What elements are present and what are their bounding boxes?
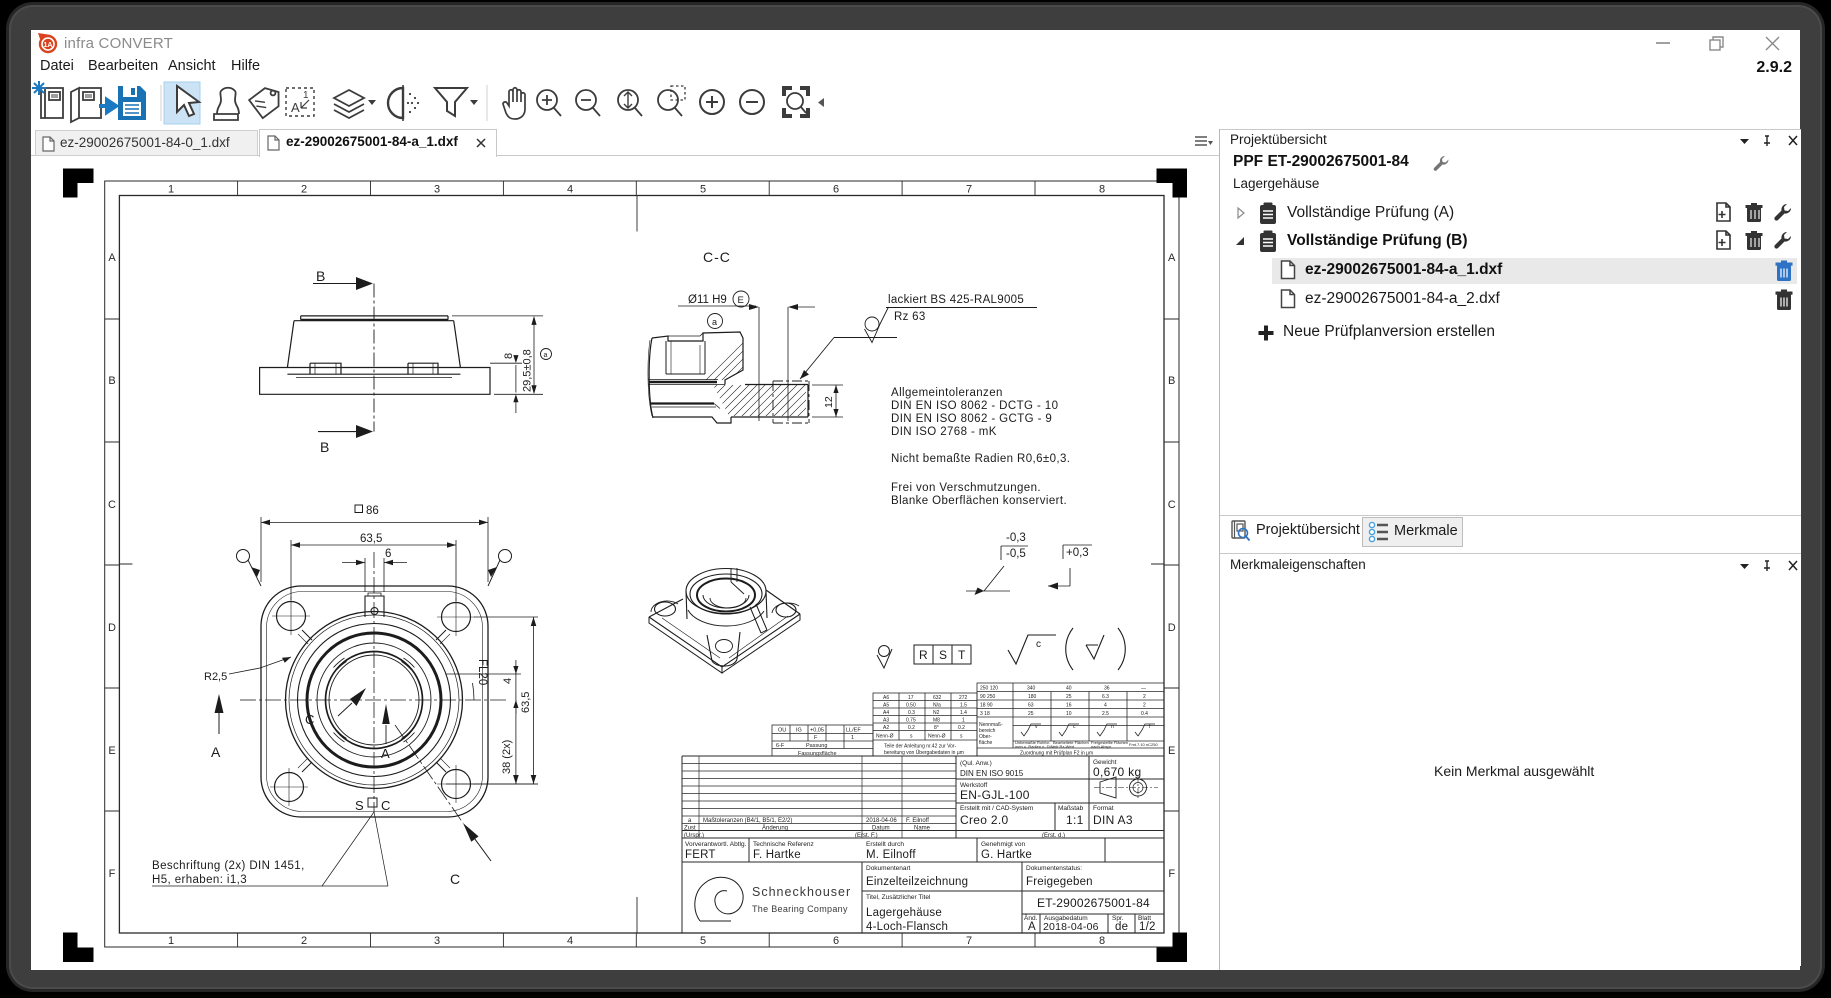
svg-text:C: C (108, 499, 116, 511)
svg-text:Technische Referenz: Technische Referenz (753, 841, 814, 848)
svg-text:90 250: 90 250 (980, 694, 996, 700)
svg-text:Frei von Verschmutzungen.: Frei von Verschmutzungen. (891, 482, 1041, 494)
svg-text:250 120: 250 120 (980, 686, 998, 692)
svg-text:Lagergehäuse: Lagergehäuse (866, 907, 942, 919)
svg-text:Ø11 H9: Ø11 H9 (688, 294, 727, 306)
svg-text:180: 180 (1028, 694, 1037, 700)
svg-text:Titel, Zusätzlicher Titel: Titel, Zusätzlicher Titel (866, 894, 931, 901)
svg-text:G. Hartke: G. Hartke (981, 849, 1032, 861)
svg-text:R: R (919, 648, 928, 662)
svg-text:4: 4 (1104, 703, 1107, 709)
svg-text:0.2: 0.2 (958, 725, 965, 731)
svg-text:(Urspr.): (Urspr.) (684, 833, 704, 839)
svg-text:A3: A3 (883, 718, 889, 724)
svg-text:Passung: Passung (806, 743, 827, 749)
svg-text:—: — (1141, 686, 1146, 692)
svg-text:Zuordnung mit Prüfplan F2 in µ: Zuordnung mit Prüfplan F2 in µm (1020, 751, 1093, 757)
svg-text:nach Abspr.: nach Abspr. (1091, 744, 1112, 749)
svg-text:EN-GJL-100: EN-GJL-100 (960, 788, 1030, 802)
svg-text:1:1: 1:1 (1066, 813, 1084, 827)
svg-text:Dokumentenart: Dokumentenart (866, 865, 911, 872)
svg-text:A: A (381, 746, 390, 761)
svg-text:6: 6 (833, 184, 839, 196)
svg-text:Maßtoleranzen (B4/1, B5/1, E2/: Maßtoleranzen (B4/1, B5/1, E2/2) (703, 818, 792, 824)
svg-text:C: C (450, 871, 460, 887)
svg-text:-0,5: -0,5 (1006, 548, 1026, 560)
svg-text:Name: Name (914, 826, 931, 832)
svg-text:Nicht bemaßte Radien R0,6±0,3.: Nicht bemaßte Radien R0,6±0,3. (891, 453, 1070, 465)
svg-text:Format: Format (1093, 805, 1114, 812)
svg-text:B: B (1168, 375, 1175, 387)
svg-text:10: 10 (1066, 711, 1072, 717)
svg-text:F: F (1168, 868, 1175, 880)
svg-text:4: 4 (567, 184, 573, 196)
svg-text:Erstellt durch: Erstellt durch (866, 841, 904, 848)
svg-text:63: 63 (1028, 703, 1034, 709)
svg-text:A: A (1168, 252, 1176, 264)
svg-text:Schneckhouser: Schneckhouser (752, 885, 851, 899)
svg-text:2.5: 2.5 (1102, 711, 1109, 717)
svg-text:B: B (320, 439, 329, 455)
svg-text:4: 4 (502, 678, 514, 684)
svg-text:M8: M8 (933, 718, 940, 724)
svg-text:men u. Radien n. DIN: men u. Radien n. DIN (1015, 744, 1054, 749)
svg-text:OU: OU (778, 728, 786, 734)
svg-text:Rz 63: Rz 63 (894, 311, 926, 323)
svg-text:C: C (305, 712, 314, 727)
svg-text:2018-04-06: 2018-04-06 (866, 818, 897, 824)
svg-text:E: E (1168, 745, 1175, 757)
svg-text:1/2: 1/2 (1139, 921, 1156, 933)
svg-text:3: 3 (434, 935, 440, 947)
svg-text:0.3: 0.3 (908, 710, 915, 716)
svg-text:5: 5 (700, 184, 706, 196)
svg-text:A: A (211, 744, 221, 760)
svg-text:Nenn-Ø: Nenn-Ø (876, 734, 894, 740)
svg-text:F: F (814, 735, 818, 741)
svg-text:DIN EN ISO 8062 - GCTG - 9: DIN EN ISO 8062 - GCTG - 9 (891, 413, 1052, 425)
svg-text:A: A (108, 252, 116, 264)
svg-text:25: 25 (1028, 711, 1034, 717)
svg-text:E: E (108, 745, 115, 757)
svg-text:40: 40 (1066, 686, 1072, 692)
svg-text:FERT: FERT (685, 849, 716, 861)
svg-text:lackiert BS 425-RAL9005: lackiert BS 425-RAL9005 (888, 294, 1024, 306)
svg-text:A2: A2 (883, 725, 889, 731)
svg-text:1: 1 (168, 184, 174, 196)
svg-text:DIN EN ISO 8062 - DCTG - 10: DIN EN ISO 8062 - DCTG - 10 (891, 400, 1058, 412)
svg-text:s: s (910, 734, 913, 740)
svg-text:18 90: 18 90 (980, 703, 993, 709)
svg-text:3 18: 3 18 (980, 711, 990, 717)
svg-text:7: 7 (966, 184, 972, 196)
svg-text:Zust: Zust (684, 826, 696, 832)
svg-text:0.2: 0.2 (908, 725, 915, 731)
svg-text:n: n (1111, 724, 1114, 730)
svg-text:2: 2 (1143, 703, 1146, 709)
svg-text:Vorverantwortl. Abtlg.: Vorverantwortl. Abtlg. (685, 841, 747, 848)
svg-text:f: f (1149, 724, 1151, 730)
svg-text:(Erst. d.): (Erst. d.) (1042, 833, 1065, 839)
svg-text:Genehmigt von: Genehmigt von (981, 841, 1025, 848)
svg-text:S: S (355, 798, 364, 813)
svg-text:2: 2 (301, 184, 307, 196)
svg-text:0.4: 0.4 (1141, 711, 1148, 717)
svg-text:(Qul. Anw.): (Qul. Anw.) (960, 760, 992, 767)
svg-text:+0,3: +0,3 (1066, 547, 1089, 559)
svg-text:8°: 8° (934, 725, 939, 731)
svg-text:Beschriftung (2x) DIN 1451,: Beschriftung (2x) DIN 1451, (152, 860, 305, 872)
svg-text:1: 1 (303, 90, 309, 101)
svg-text:DIN EN ISO 9015: DIN EN ISO 9015 (960, 769, 1024, 778)
svg-text:1: 1 (962, 718, 965, 724)
svg-text:4: 4 (567, 935, 573, 947)
svg-text:C: C (381, 798, 390, 813)
svg-text:7: 7 (966, 935, 972, 947)
svg-text:6: 6 (385, 548, 391, 560)
svg-text:17: 17 (908, 695, 914, 701)
svg-text:A: A (1028, 921, 1036, 933)
svg-text:86: 86 (366, 505, 379, 517)
svg-text:0.75: 0.75 (906, 718, 916, 724)
svg-text:29,5±0,8: 29,5±0,8 (522, 349, 534, 392)
svg-text:A6: A6 (883, 695, 889, 701)
svg-text:Fassungsfläche: Fassungsfläche (798, 751, 837, 757)
svg-text:1A: 1A (44, 42, 53, 49)
svg-text:c: c (1073, 724, 1076, 730)
svg-text:(Erst. F.): (Erst. F.) (855, 833, 878, 839)
svg-text:E: E (738, 295, 744, 306)
svg-text:36: 36 (1104, 686, 1110, 692)
svg-text:-0,3: -0,3 (1006, 532, 1026, 544)
svg-text:6-F: 6-F (776, 743, 785, 749)
svg-text:Dokumentenstatus:: Dokumentenstatus: (1026, 865, 1082, 872)
svg-text:a: a (544, 352, 548, 359)
svg-text:3: 3 (434, 184, 440, 196)
svg-text:Nenn-Ø: Nenn-Ø (928, 734, 946, 740)
svg-text:F. Eilnoff: F. Eilnoff (906, 818, 929, 824)
svg-text:C: C (1168, 499, 1176, 511)
svg-text:DIN ISO 2768 - mK: DIN ISO 2768 - mK (891, 426, 997, 438)
svg-text:16: 16 (1066, 703, 1072, 709)
svg-text:6.3: 6.3 (1102, 694, 1109, 700)
svg-text:632: 632 (933, 695, 942, 701)
svg-text:Datum: Datum (872, 826, 890, 832)
svg-text:N2: N2 (933, 710, 940, 716)
svg-text:S: S (939, 648, 947, 662)
svg-text:v: v (1035, 724, 1038, 730)
svg-text:6: 6 (833, 935, 839, 947)
svg-text:ET-29002675001-84: ET-29002675001-84 (1037, 896, 1150, 910)
svg-text:N/a: N/a (933, 703, 941, 709)
svg-text:LL/EF: LL/EF (846, 728, 861, 734)
svg-text:63,5: 63,5 (360, 533, 382, 545)
svg-text:Freigegeben: Freigegeben (1026, 876, 1093, 888)
svg-text:Creo 2.0: Creo 2.0 (960, 813, 1008, 827)
svg-text:340: 340 (1027, 686, 1036, 692)
svg-text:Blanke Oberflächen konserviert: Blanke Oberflächen konserviert. (891, 495, 1067, 507)
svg-text:+0,05: +0,05 (810, 728, 824, 734)
svg-text:M. Eilnoff: M. Eilnoff (866, 849, 916, 861)
svg-text:Fmt.7.10 nC250: Fmt.7.10 nC250 (1129, 742, 1158, 747)
svg-text:A5: A5 (883, 703, 889, 709)
svg-text:de: de (1115, 921, 1128, 933)
svg-text:8: 8 (1099, 935, 1105, 947)
svg-text:5: 5 (700, 935, 706, 947)
svg-text:1: 1 (168, 935, 174, 947)
svg-text:D: D (108, 622, 116, 634)
svg-text:63,5: 63,5 (520, 692, 532, 713)
svg-text:2018-04-06: 2018-04-06 (1043, 921, 1099, 933)
svg-text:bereitung von Übergabedaten in: bereitung von Übergabedaten in µm (884, 749, 964, 756)
svg-text:D: D (1168, 622, 1176, 634)
svg-text:FL20: FL20 (476, 659, 488, 685)
svg-text:A: A (291, 100, 300, 115)
svg-text:1.4: 1.4 (960, 710, 967, 716)
svg-text:38 (2x): 38 (2x) (501, 740, 513, 774)
svg-text:8: 8 (1099, 184, 1105, 196)
svg-text:272: 272 (959, 695, 968, 701)
svg-text:F: F (109, 868, 116, 880)
svg-text:The Bearing Company: The Bearing Company (752, 904, 848, 914)
svg-text:0,670 kg: 0,670 kg (1093, 765, 1141, 779)
svg-text:2: 2 (1143, 694, 1146, 700)
svg-text:DIN A3: DIN A3 (1093, 813, 1133, 827)
svg-text:B: B (316, 268, 325, 284)
svg-text:fläche: fläche (979, 740, 993, 746)
svg-text:a: a (688, 818, 692, 824)
svg-text:T: T (958, 648, 966, 662)
svg-text:4-Loch-Flansch: 4-Loch-Flansch (866, 921, 948, 933)
svg-text:IG: IG (796, 728, 802, 734)
svg-text:A4: A4 (883, 710, 889, 716)
svg-text:B: B (108, 375, 115, 387)
svg-text:2: 2 (301, 935, 307, 947)
svg-text:Änderung: Änderung (762, 825, 788, 832)
svg-text:c: c (1036, 639, 1041, 650)
svg-text:1.5: 1.5 (960, 703, 967, 709)
svg-text:Einzelteilzeichnung: Einzelteilzeichnung (866, 876, 968, 888)
svg-text:1: 1 (851, 735, 854, 741)
svg-text:Teile der Anleitung nr.42 zur: Teile der Anleitung nr.42 zur Vor- (884, 744, 957, 750)
svg-text:0.50: 0.50 (906, 703, 916, 709)
svg-text:F. Hartke: F. Hartke (753, 849, 801, 861)
svg-text:a: a (712, 317, 717, 327)
svg-text:H5, erhaben: i1,3: H5, erhaben: i1,3 (152, 874, 247, 886)
svg-text:Allgemeintoleranzen: Allgemeintoleranzen (891, 387, 1003, 399)
svg-text:25: 25 (1066, 694, 1072, 700)
svg-text:mit Rz-Wert: mit Rz-Wert (1053, 744, 1075, 749)
svg-text:8: 8 (503, 353, 515, 359)
svg-text:Erstellt mit / CAD-System: Erstellt mit / CAD-System (960, 805, 1033, 812)
svg-text:s: s (960, 734, 963, 740)
svg-text:12: 12 (823, 396, 835, 408)
svg-text:Maßstab: Maßstab (1058, 805, 1084, 812)
svg-text:C-C: C-C (703, 249, 731, 265)
svg-text:R2,5: R2,5 (204, 671, 227, 683)
